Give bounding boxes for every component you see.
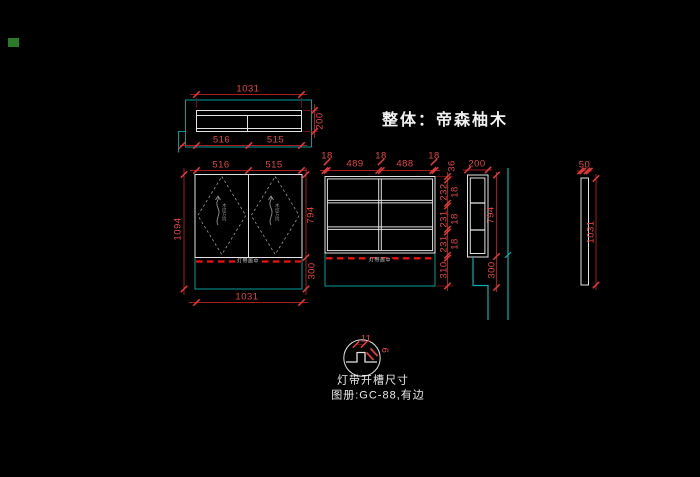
dim-carcass-t4: 18 — [428, 151, 440, 161]
dim-carcass-t0: 18 — [321, 151, 333, 161]
dim-carcass-r2: 231 — [439, 210, 449, 227]
dim-carcass-s3: 18 — [450, 238, 460, 250]
dim-top-left: 516 — [213, 135, 230, 145]
dim-notch-depth: 9 — [381, 347, 391, 353]
dim-front-body: 794 — [306, 206, 316, 223]
detail-caption: 灯带开槽尺寸 — [337, 375, 409, 386]
dim-panel-thickness: 50 — [579, 160, 591, 170]
dim-carcass-top: 36 — [447, 160, 457, 172]
dim-carcass-t1: 489 — [346, 159, 363, 169]
detail-circle — [344, 340, 380, 376]
dim-front-door-left: 516 — [212, 160, 229, 170]
dim-carcass-t3: 488 — [396, 159, 413, 169]
front-view — [181, 167, 309, 305]
dim-carcass-r3: 231 — [439, 235, 449, 252]
dim-section-bottom: 300 — [487, 261, 497, 278]
dim-section-body: 794 — [486, 206, 496, 223]
detail-note: 图册:GC-88,有边 — [331, 391, 425, 402]
dim-front-bottom: 300 — [307, 262, 317, 279]
door-grain-label: 木纹方向 — [275, 203, 280, 221]
cad-canvas[interactable]: 整体：帝森柚木 1031 200 516 515 516 515 1094 79… — [0, 0, 700, 477]
dim-top-right: 515 — [267, 135, 284, 145]
grain-arrow-icon — [216, 196, 221, 225]
grain-arrow-icon — [269, 196, 274, 225]
dim-carcass-r1: 232 — [439, 183, 449, 200]
dim-carcass-s1: 18 — [450, 186, 460, 198]
material-note: 整体：帝森柚木 — [382, 113, 508, 129]
green-marker — [8, 38, 19, 47]
dim-ticks — [181, 167, 309, 305]
section-view — [463, 167, 511, 320]
groove-detail — [344, 340, 380, 376]
dim-top-depth: 200 — [315, 112, 325, 129]
top-view — [179, 91, 319, 152]
strip-center-label: 灯带居中 — [367, 259, 393, 264]
groove-profile — [346, 353, 377, 363]
door-grain-label: 木纹方向 — [222, 203, 227, 221]
dim-notch-width: 11 — [361, 334, 372, 344]
dim-front-width: 1031 — [235, 292, 258, 302]
dim-section-depth: 200 — [468, 159, 485, 169]
dim-panel-length: 1031 — [586, 220, 596, 243]
dim-top-width: 1031 — [236, 84, 259, 94]
dim-carcass-bottom: 310 — [439, 261, 449, 278]
dim-carcass-s2: 18 — [450, 213, 460, 225]
dim-front-height: 1094 — [173, 217, 183, 240]
carcass-view — [320, 159, 453, 291]
dim-ticks — [322, 159, 451, 289]
strip-center-label: 灯带居中 — [235, 259, 261, 264]
dim-carcass-t2: 18 — [375, 151, 387, 161]
dim-front-door-right: 515 — [265, 160, 282, 170]
